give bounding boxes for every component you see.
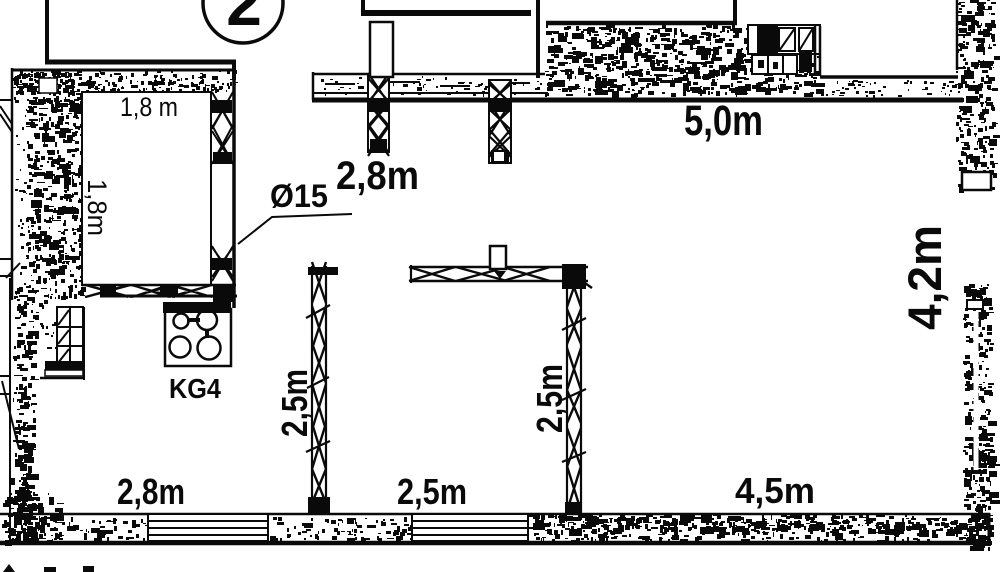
svg-text:1,8m: 1,8m (82, 179, 112, 236)
svg-text:1,8 m: 1,8 m (120, 92, 178, 122)
svg-text:KG4: KG4 (169, 373, 221, 404)
svg-text:4,5m: 4,5m (735, 470, 815, 511)
svg-text:4,2m: 4,2m (898, 225, 951, 330)
svg-text:5,0m: 5,0m (684, 97, 763, 145)
svg-text:2,5m: 2,5m (529, 364, 570, 433)
svg-text:2: 2 (226, 0, 262, 39)
svg-text:2,5m: 2,5m (397, 471, 467, 512)
svg-text:2,5m: 2,5m (274, 369, 315, 437)
svg-text:2,8m: 2,8m (117, 471, 185, 512)
svg-text:2,8m: 2,8m (336, 154, 419, 198)
svg-text:Ø15: Ø15 (270, 178, 328, 214)
